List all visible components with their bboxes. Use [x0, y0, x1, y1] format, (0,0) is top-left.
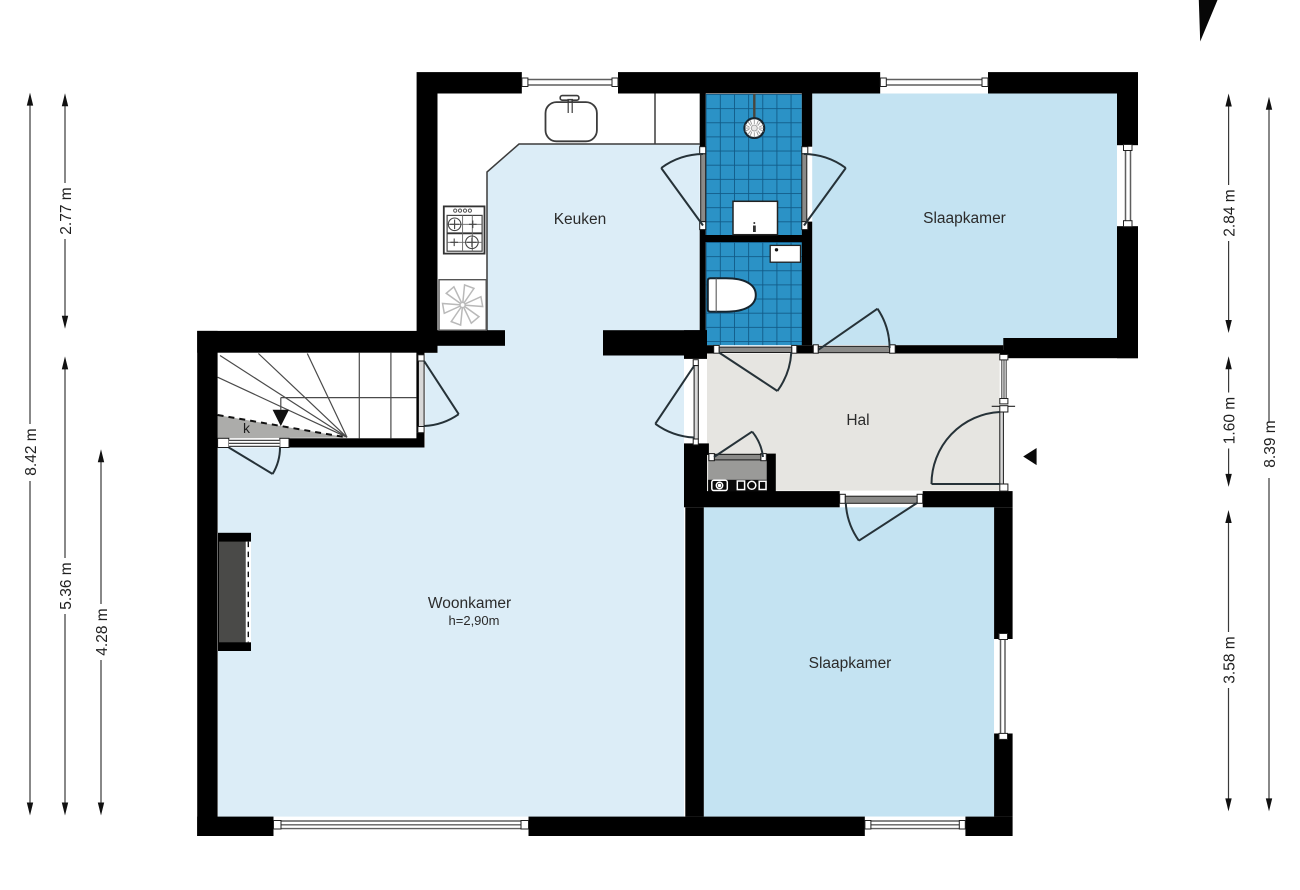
svg-text:Slaapkamer: Slaapkamer — [809, 655, 892, 672]
svg-text:Woonkamer: Woonkamer — [428, 595, 511, 612]
svg-text:5.36 m: 5.36 m — [58, 562, 75, 609]
svg-text:2.84 m: 2.84 m — [1222, 189, 1239, 236]
svg-text:4.28 m: 4.28 m — [94, 608, 111, 655]
svg-text:Hal: Hal — [846, 412, 869, 429]
svg-text:2.77 m: 2.77 m — [58, 187, 75, 234]
svg-text:Keuken: Keuken — [554, 211, 607, 228]
svg-text:8.42 m: 8.42 m — [23, 428, 40, 475]
svg-text:3.58 m: 3.58 m — [1222, 636, 1239, 683]
svg-text:Slaapkamer: Slaapkamer — [923, 210, 1006, 227]
svg-text:8.39 m: 8.39 m — [1262, 420, 1279, 467]
svg-text:h=2,90m: h=2,90m — [449, 613, 500, 628]
svg-text:k: k — [243, 420, 251, 436]
svg-text:1.60 m: 1.60 m — [1222, 397, 1239, 444]
